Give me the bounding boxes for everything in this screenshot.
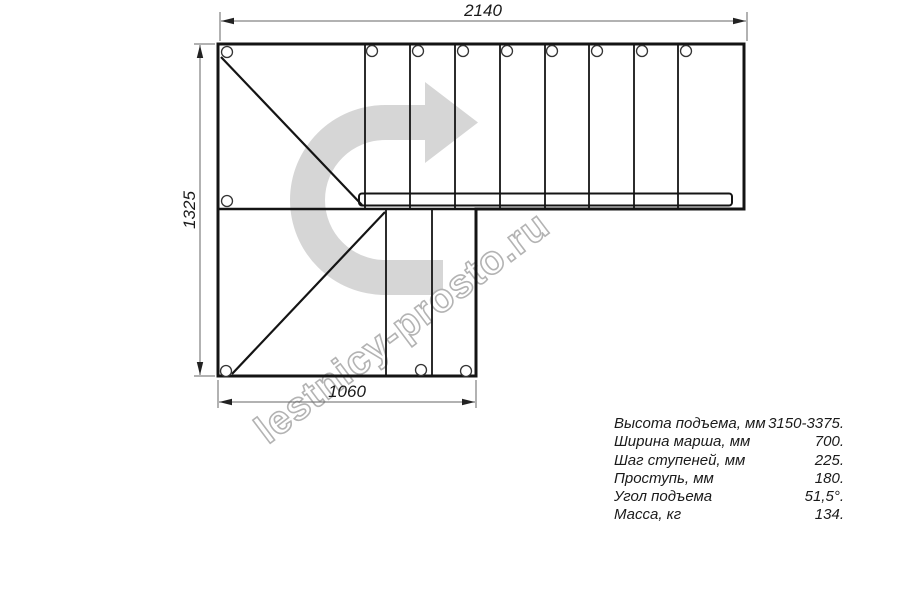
spec-row-height: Высота подъема, мм 3150-3375.	[614, 415, 844, 433]
spec-value: 51,5°.	[805, 488, 844, 506]
spec-label: Высота подъема, мм	[614, 415, 766, 433]
spec-row-flight-width: Ширина марша, мм 700.	[614, 433, 844, 451]
spec-label: Угол подъема	[614, 488, 712, 506]
spec-value: 700.	[815, 433, 844, 451]
spec-row-angle: Угол подъема 51,5°.	[614, 488, 844, 506]
stair-drawing-page: lestnicy-prosto.ru	[0, 0, 900, 600]
spec-value: 180.	[815, 470, 844, 488]
spec-value: 3150-3375.	[768, 415, 844, 433]
dimension-bottom: 1060	[218, 380, 476, 408]
spec-value: 225.	[815, 452, 844, 470]
dimension-top: 2140	[220, 1, 747, 41]
dimension-left-label: 1325	[180, 191, 199, 229]
spec-label: Шаг ступеней, мм	[614, 452, 745, 470]
spec-value: 134.	[815, 506, 844, 524]
spec-row-tread: Проступь, мм 180.	[614, 470, 844, 488]
spec-row-step-pitch: Шаг ступеней, мм 225.	[614, 452, 844, 470]
spec-label: Ширина марша, мм	[614, 433, 750, 451]
dimension-top-label: 2140	[463, 1, 502, 20]
dimension-bottom-label: 1060	[328, 382, 366, 401]
watermark-text: lestnicy-prosto.ru	[247, 203, 558, 452]
dimension-left: 1325	[180, 44, 215, 376]
spec-label: Проступь, мм	[614, 470, 714, 488]
spec-table: Высота подъема, мм 3150-3375. Ширина мар…	[614, 415, 844, 525]
spec-label: Масса, кг	[614, 506, 681, 524]
spec-row-mass: Масса, кг 134.	[614, 506, 844, 524]
